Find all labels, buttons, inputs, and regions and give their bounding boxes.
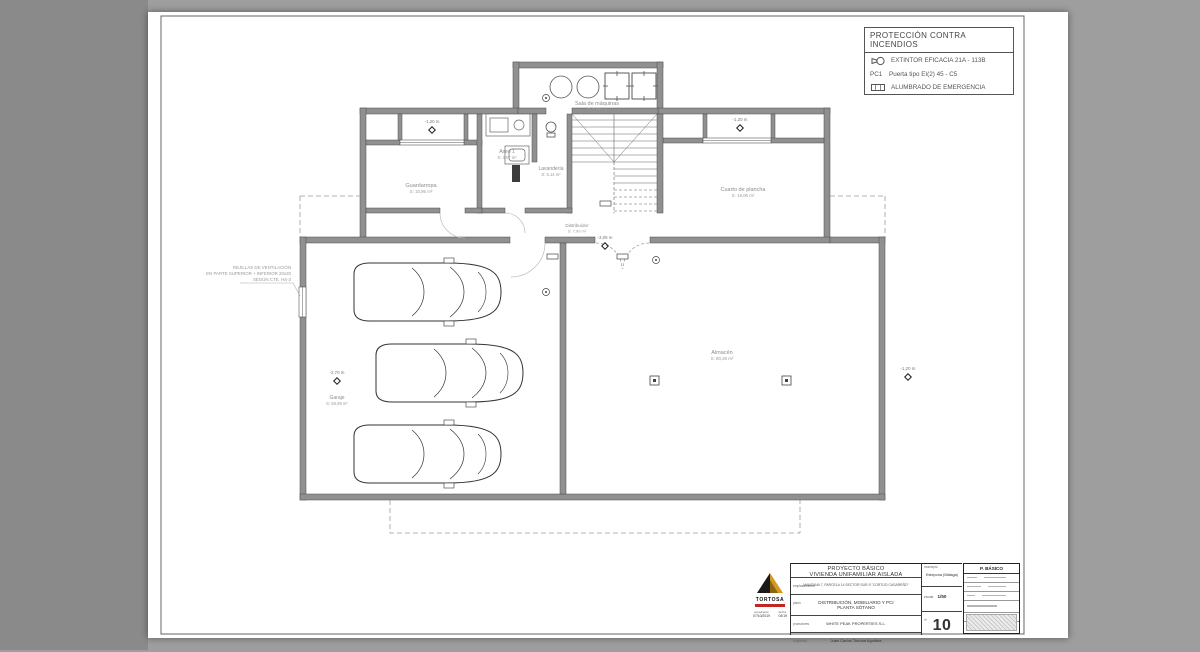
project-title-line2: VIVIENDA UNIFAMILIAR AISLADA (791, 572, 921, 578)
promotores-value: WHITE PEAK PROPERTIES S.L. (791, 621, 921, 626)
stamp-line (964, 592, 1019, 601)
stamp-field (982, 595, 1006, 597)
stamp-field (988, 586, 1006, 588)
title-block: TORTOSA expediente fecha 07/10/2019 04/1… (750, 563, 962, 635)
drawing-sheet: Sala de máquinas S: 7,06 m² Aseo 1 S: 4,… (148, 12, 1068, 638)
municipio-label: municipio (924, 565, 937, 569)
project-title: PROYECTO BÁSICO VIVIENDA UNIFAMILIAR AIS… (791, 563, 921, 578)
emplazamiento-row: emplazamiento MANZANA 7, PARCELA 14 SECT… (791, 583, 921, 595)
level-label: -1,20 m (425, 119, 440, 124)
floor-plan-drawing: Sala de máquinas S: 7,06 m² Aseo 1 S: 4,… (148, 12, 1068, 638)
visa-stamp-box: P. BÁSICO (963, 563, 1020, 634)
room-area: S: 4,07 m² (497, 155, 517, 160)
ventilation-note-line2: EN PARTE SUPERIOR + INFERIOR 20x20 (206, 271, 291, 276)
expediente-fecha-values: 07/10/2019 04/19 (752, 614, 788, 618)
emplazamiento-label: emplazamiento (793, 584, 815, 588)
arquitecto-value: Juan Carlos Tortosa Aguilera (791, 638, 921, 643)
municipio-value: Estepona (Málaga) (922, 573, 962, 577)
extinguisher-icon (870, 56, 886, 66)
expediente-value: 07/10/2019 (753, 614, 770, 618)
emergency-light-icon (870, 83, 886, 92)
legend-door-code: PC1 (870, 71, 884, 78)
room-area: S: 7,90 m² (568, 229, 587, 234)
room-area: S: 10,95 m² (410, 189, 433, 194)
logo-text: TORTOSA (752, 597, 788, 603)
stamp-title: P. BÁSICO (964, 564, 1019, 574)
escala-label: escala (924, 595, 933, 599)
numero-label: nº (924, 618, 927, 622)
stamp-signature-hatch (966, 614, 1017, 631)
legend-label: EXTINTOR EFICACIA 21A - 113B (891, 57, 986, 64)
municipio-cell: municipio Estepona (Málaga) (922, 563, 962, 587)
doors (440, 165, 649, 277)
legend-row-emergency-light: ALUMBRADO DE EMERGENCIA (865, 80, 1013, 94)
legend-row-extinguisher: EXTINTOR EFICACIA 21A - 113B (865, 53, 1013, 68)
sheet-number: 10 (922, 617, 962, 635)
logo-triangle-icon (755, 571, 785, 595)
stamp-field (967, 605, 997, 607)
title-block-right: municipio Estepona (Málaga) escala 1/50 … (922, 563, 962, 635)
arquitecto-label: arquitecto (793, 639, 807, 643)
logo-red-bar (755, 604, 785, 607)
viewer-left-panel (0, 0, 148, 650)
columns (650, 376, 791, 385)
room-area: S: 5,14 m² (541, 172, 561, 177)
room-area: S: 80,28 m² (711, 356, 734, 361)
fire-protection-legend: PROTECCIÓN CONTRA INCENDIOS EXTINTOR EFI… (864, 27, 1014, 95)
legend-title: PROTECCIÓN CONTRA INCENDIOS (865, 28, 1013, 53)
fecha-value: 04/19 (779, 614, 788, 618)
stamp-line (964, 583, 1019, 592)
plano-row: plano DISTRIBUCIÓN, MOBILIARIO Y PCI PLA… (791, 600, 921, 616)
plano-label: plano (793, 601, 801, 605)
stamp-field (984, 577, 1006, 579)
room-area: S: 19,06 m² (732, 193, 755, 198)
room-area: S: 66,99 m² (326, 401, 348, 406)
plano-line2: PLANTA SÓTANO (791, 605, 921, 610)
level-label: -2,70 m (330, 370, 345, 375)
legend-row-door: PC1 Puerta tipo EI(2) 45 - C5 (865, 68, 1013, 80)
promotores-row: promotores WHITE PEAK PROPERTIES S.L. (791, 621, 921, 633)
level-label: -3,05 m (598, 235, 613, 240)
ventilation-note: REJILLAS DE VENTILACIÓN EN PARTE SUPERIO… (206, 265, 291, 282)
stamp-field (967, 595, 975, 597)
level-label: -1,20 m (901, 366, 916, 371)
viewer-background: Sala de máquinas S: 7,06 m² Aseo 1 S: 4,… (0, 0, 1200, 650)
sheet-number-cell: nº 10 (922, 617, 962, 647)
level-label: -1,20 m (733, 117, 748, 122)
tortosa-logo: TORTOSA expediente fecha 07/10/2019 04/1… (752, 571, 788, 633)
room-area: S: 7,06 m² (587, 107, 608, 112)
escala-cell: escala 1/50 (922, 594, 962, 612)
stamp-field (967, 586, 981, 588)
title-block-main: PROYECTO BÁSICO VIVIENDA UNIFAMILIAR AIS… (790, 563, 922, 635)
promotores-label: promotores (793, 622, 809, 626)
ventilation-note-line3: SEGÚN CTE. HS-3 (253, 277, 292, 282)
annotation-leader-line (240, 283, 300, 296)
legend-label: Puerta tipo EI(2) 45 - C5 (889, 71, 957, 78)
staircase (572, 114, 657, 213)
ventilation-note-line1: REJILLAS DE VENTILACIÓN (233, 265, 291, 270)
stamp-line (964, 601, 1019, 613)
legend-label: ALUMBRADO DE EMERGENCIA (891, 84, 985, 91)
cars (354, 258, 523, 488)
stamp-field (967, 577, 977, 579)
room-label: Distribuidor (565, 223, 589, 228)
stamp-line (964, 574, 1019, 583)
